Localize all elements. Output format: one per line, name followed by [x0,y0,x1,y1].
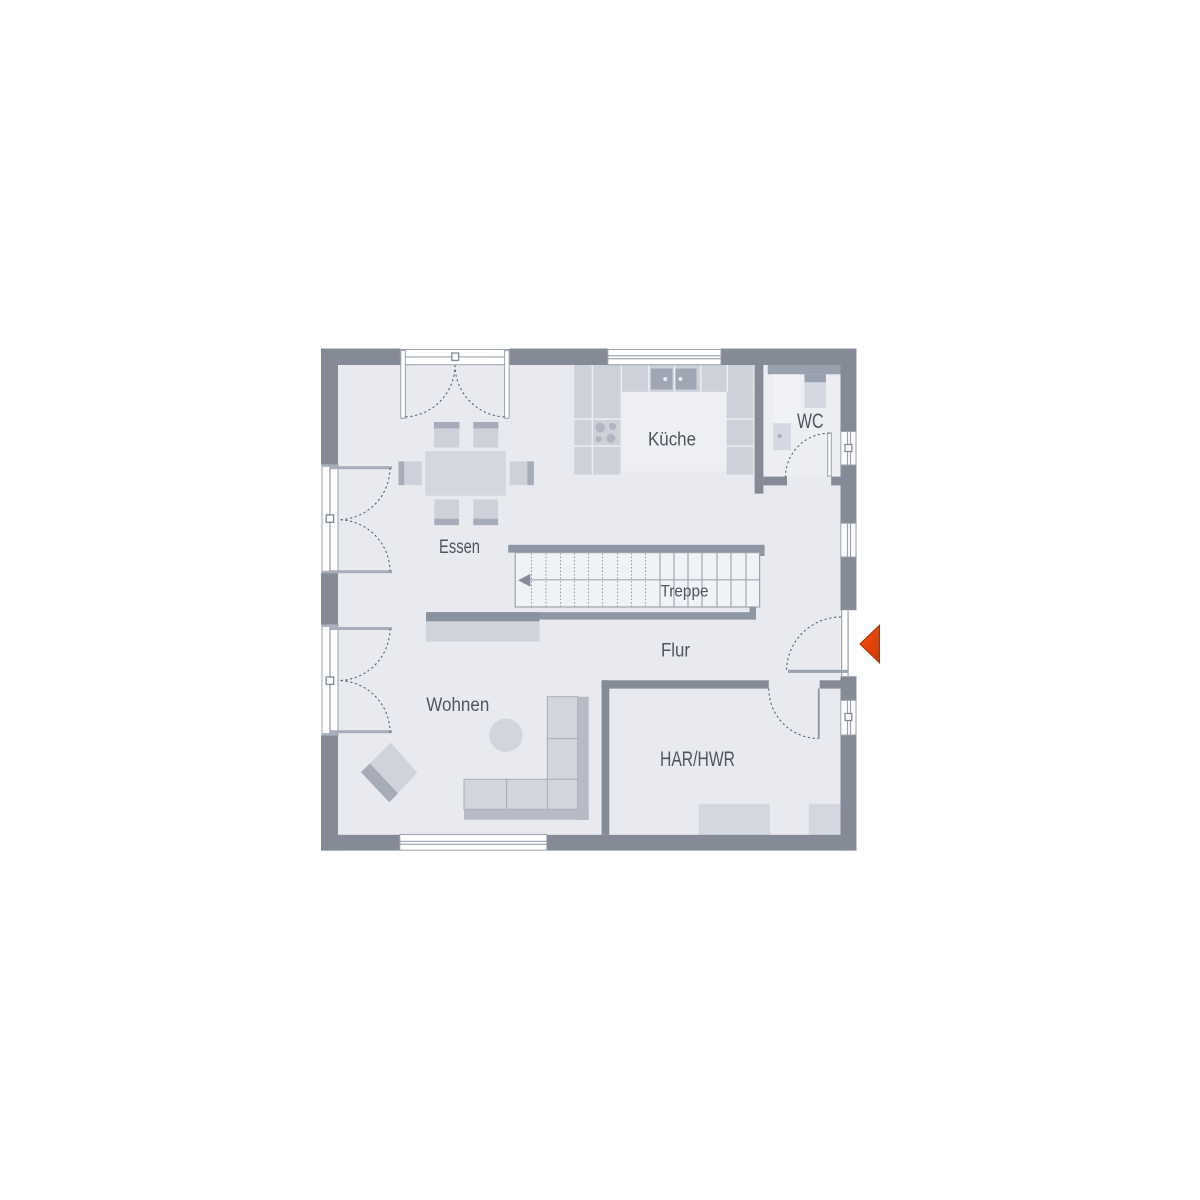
svg-text:WC: WC [797,409,824,433]
svg-text:Wohnen: Wohnen [426,694,489,716]
svg-text:Treppe: Treppe [661,582,709,601]
svg-text:Essen: Essen [439,536,480,558]
svg-text:Küche: Küche [648,430,696,451]
svg-text:HAR/HWR: HAR/HWR [660,748,735,771]
svg-text:Flur: Flur [661,640,690,662]
